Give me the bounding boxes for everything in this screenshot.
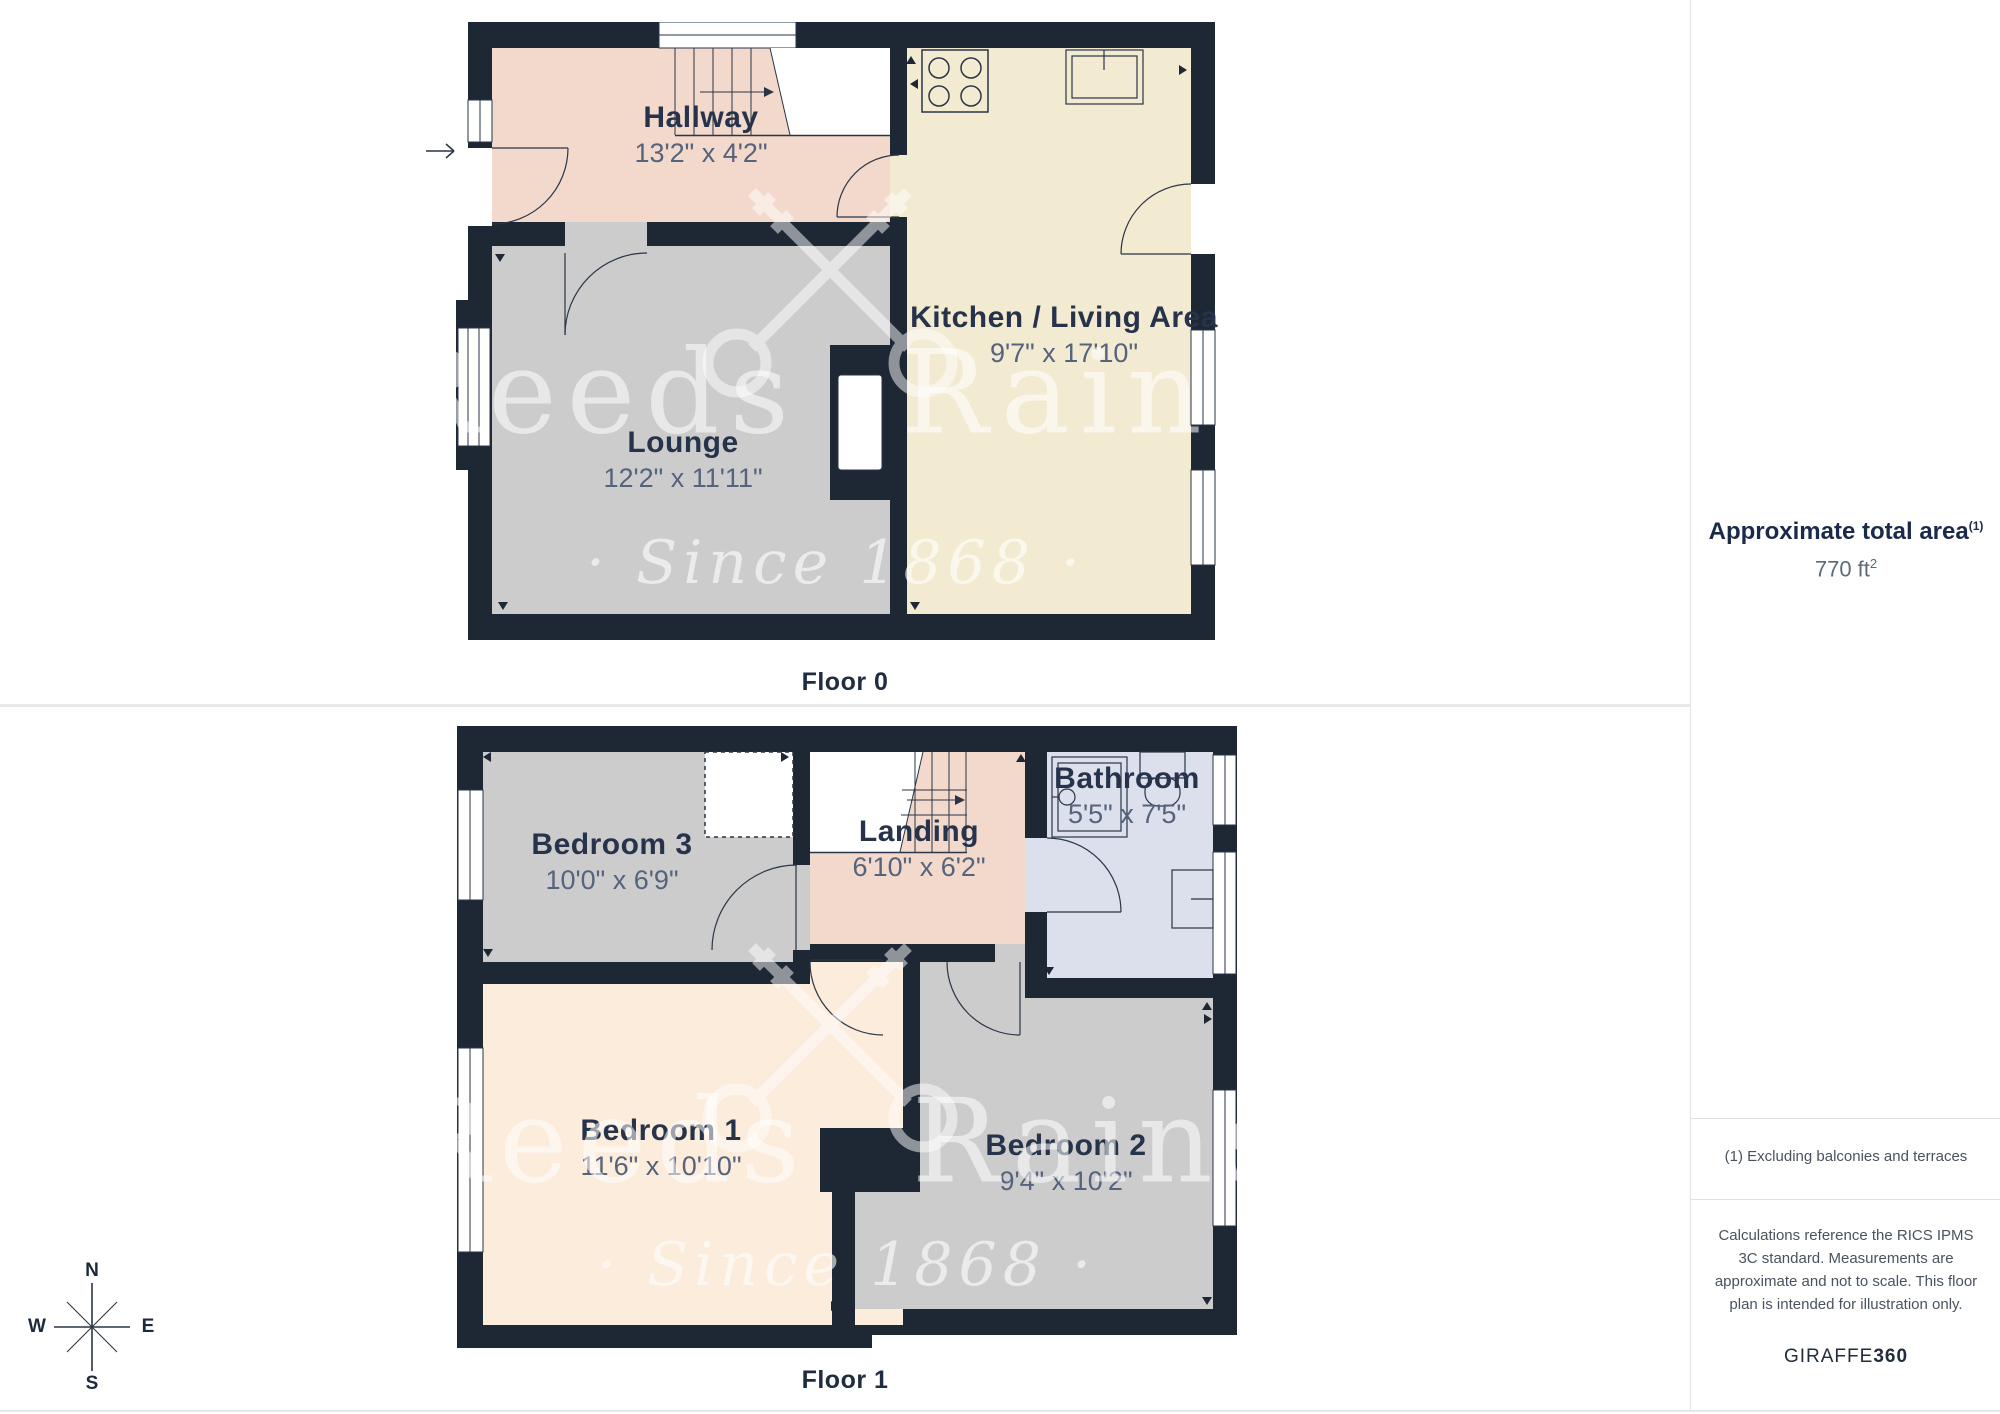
disclaimer-text: Calculations reference the RICS IPMS 3C … [1710,1224,1982,1316]
hallway-window [468,100,492,142]
room-bedroom2 [920,962,1025,1309]
entrance-arrow [424,140,460,162]
sidebar-divider-2 [1691,1199,2000,1200]
floor-section-divider [0,704,1690,707]
giraffe360-logo: GIRAFFE360 [1691,1346,2000,1368]
bathroom-windows [1213,755,1236,974]
compass-rose [40,1275,144,1379]
bedroom2-window [1213,1090,1236,1226]
floor1-plan [457,726,1237,1348]
lounge-bay-window [458,328,490,446]
room-kitchen [907,48,1191,614]
room-bathroom [1047,752,1213,978]
floor1-label: Floor 1 [0,1366,1690,1395]
sidebar-divider-1 [1691,1118,2000,1119]
floorplan-page: Hallway 13'2" x 4'2" Lounge 12'2" x 11'1… [0,0,2000,1414]
floor0-plan [456,22,1216,640]
total-area-value: 770 ft2 [1691,556,2000,582]
page-bottom-border [0,1410,2000,1412]
info-sidebar: Approximate total area(1) 770 ft2 (1) Ex… [1690,0,2000,1411]
footnote-text: (1) Excluding balconies and terraces [1691,1148,2000,1165]
floor0-label: Floor 0 [0,668,1690,697]
cupboard [705,752,793,837]
bedroom1-window [458,1048,483,1252]
bedroom3-window [458,790,483,900]
total-area-title: Approximate total area(1) [1691,518,2000,546]
footnote-marker: (1) [1969,519,1984,533]
